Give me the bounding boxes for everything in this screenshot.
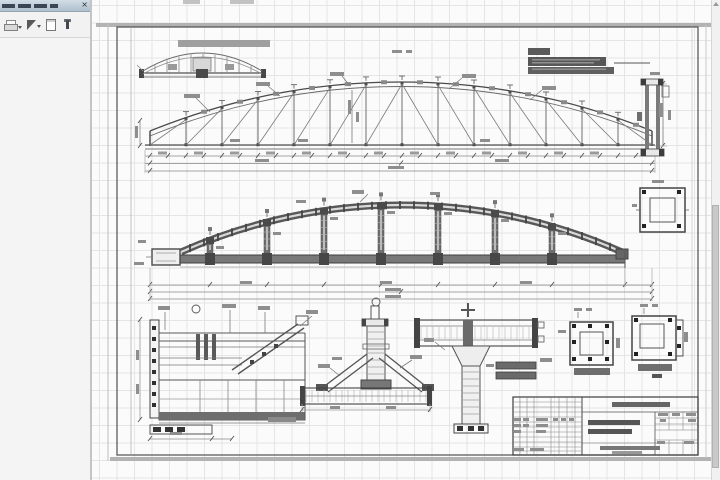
print-button[interactable] [4, 19, 22, 31]
pin-button[interactable] [61, 19, 74, 31]
palette-body[interactable] [0, 38, 90, 480]
palette-titlebar[interactable]: × [0, 0, 90, 12]
scroll-up-icon[interactable] [713, 2, 719, 6]
cursor-icon [27, 20, 36, 30]
tool-palette: × [0, 0, 92, 480]
scrollbar-thumb[interactable] [712, 205, 719, 468]
page-button[interactable] [46, 18, 56, 31]
palette-title [2, 4, 58, 8]
drawing-canvas[interactable] [90, 0, 712, 480]
print-icon [4, 19, 17, 31]
pin-icon [61, 19, 74, 31]
vertical-scrollbar[interactable] [711, 0, 720, 480]
chevron-down-icon[interactable] [37, 25, 41, 28]
application-window: × [0, 0, 720, 480]
palette-toolbar [0, 12, 90, 38]
page-icon [46, 19, 56, 31]
chevron-down-icon[interactable] [18, 26, 22, 29]
select-button[interactable] [27, 19, 41, 30]
close-icon[interactable]: × [81, 0, 88, 10]
